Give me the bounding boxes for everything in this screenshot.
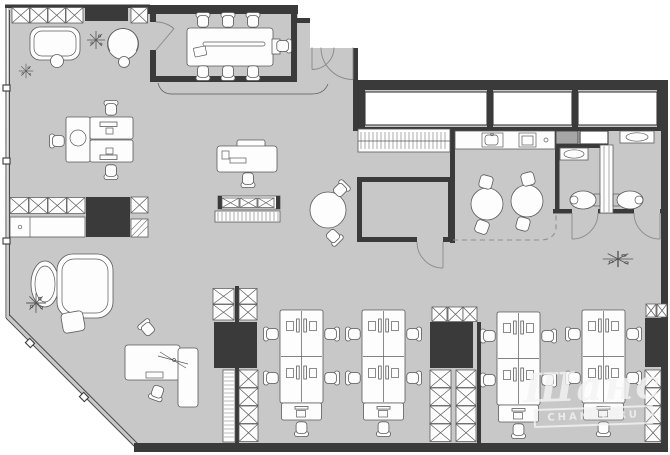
mullion-tick	[3, 158, 10, 164]
low-cabinet	[10, 217, 85, 237]
duct-shaft	[556, 131, 578, 144]
windows	[365, 92, 657, 125]
mullion-tick	[3, 85, 10, 91]
window	[365, 92, 487, 125]
round-table	[471, 188, 503, 220]
kitchen-counter	[455, 131, 555, 149]
round-table	[310, 192, 346, 228]
coat-closet	[358, 129, 450, 152]
desk-return	[178, 348, 198, 407]
side-table	[51, 55, 64, 68]
wall-hung-toilet	[617, 191, 643, 209]
wall-pier	[645, 318, 661, 367]
footstool	[119, 57, 130, 68]
duct-shaft	[580, 131, 608, 144]
wall-hung-toilet	[570, 191, 596, 209]
wall-pier	[430, 322, 473, 368]
round-table	[511, 185, 543, 217]
desk	[66, 117, 90, 162]
wall-pier	[86, 197, 130, 237]
plumbing-wall	[600, 145, 613, 213]
monitor	[100, 155, 117, 160]
wall-pier	[85, 5, 128, 21]
mullion-tick	[3, 238, 10, 244]
floor-plan	[0, 0, 670, 455]
window	[493, 92, 572, 125]
floorplan-page: { "title": "Office floor plan", "waterma…	[0, 0, 670, 455]
monitor	[100, 122, 117, 127]
coat-rack	[358, 129, 450, 152]
ottoman	[60, 310, 85, 334]
window	[578, 92, 657, 125]
executive-desk	[125, 345, 180, 380]
shafts	[556, 131, 608, 144]
lounge-sofa	[57, 254, 113, 318]
